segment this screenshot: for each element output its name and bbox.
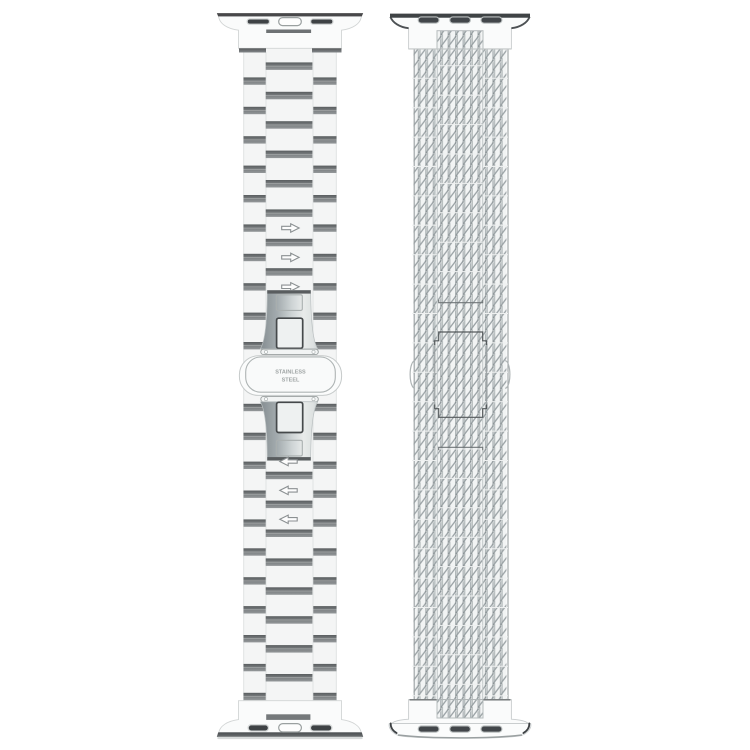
svg-text:STAINLESS: STAINLESS — [275, 369, 306, 375]
svg-text:STEEL: STEEL — [282, 377, 300, 383]
